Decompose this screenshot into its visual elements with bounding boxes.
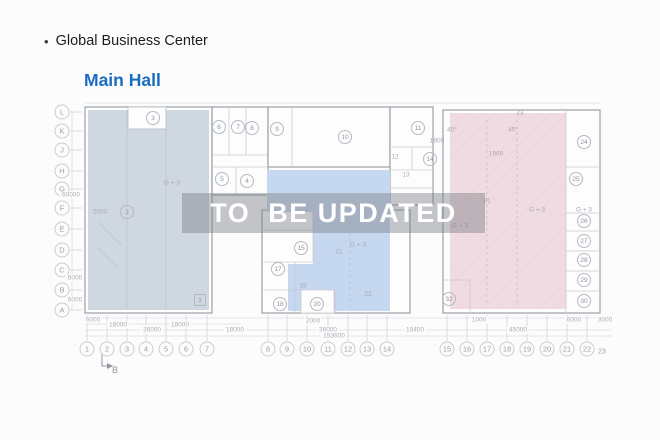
plan-annotation: 45° — [447, 127, 457, 134]
dimension-label: 2000 — [304, 318, 322, 325]
grid-col-4: 4 — [139, 342, 154, 357]
grid-col-tick — [367, 315, 368, 341]
dimension-label: 60000 — [60, 192, 82, 199]
room-5: 5 — [215, 172, 229, 186]
grid-row-H: H — [55, 164, 70, 179]
plan-annotation: 21 — [335, 249, 342, 256]
plan-annotation: 12 — [391, 154, 398, 161]
grid-row-D: D — [55, 243, 70, 258]
grid-col-16: 16 — [460, 342, 475, 357]
grid-row-tick — [70, 150, 82, 151]
room-2: 2 — [120, 205, 134, 219]
grid-col-tick — [268, 315, 269, 341]
room-8: 8 — [245, 121, 259, 135]
dimension-label: 6000 — [66, 297, 84, 304]
plan-annotation: 13 — [402, 172, 409, 179]
grid-row-F: F — [55, 201, 70, 216]
grid-row-L: L — [55, 105, 70, 120]
dimension-label: 18000 — [107, 322, 129, 329]
grid-row-tick — [70, 131, 82, 132]
grid-col-tick — [387, 315, 388, 341]
grid-row-B: B — [55, 283, 70, 298]
room-4: 4 — [240, 174, 254, 188]
grid-col-tick — [348, 315, 349, 341]
grid-row-J: J — [55, 143, 70, 158]
room-17: 17 — [271, 262, 285, 276]
dimension-label: 3000 — [596, 317, 614, 324]
dimension-label: 36000 — [141, 327, 163, 334]
room-27: 27 — [577, 234, 591, 248]
grid-col-20: 20 — [540, 342, 555, 357]
plan-annotation: 19 — [299, 283, 306, 290]
grid-col-10: 10 — [300, 342, 315, 357]
grid-col-13: 13 — [360, 342, 375, 357]
grid-col-6: 6 — [179, 342, 194, 357]
watermark-band: TO BE UPDATED — [182, 193, 485, 233]
room-30: 30 — [577, 294, 591, 308]
room-1: 1 — [194, 294, 206, 306]
grid-row-tick — [70, 290, 82, 291]
dimension-label: 18000 — [224, 327, 246, 334]
dimension-label: 6000 — [565, 317, 583, 324]
section-marker-label: B — [112, 365, 118, 375]
grid-col-15: 15 — [440, 342, 455, 357]
dimension-label: 45000 — [507, 327, 529, 334]
grid-col-3: 3 — [120, 342, 135, 357]
grid-row-A: A — [55, 303, 70, 318]
grid-row-tick — [70, 171, 82, 172]
room-9: 9 — [270, 122, 284, 136]
room-6: 6 — [212, 120, 226, 134]
grid-row-tick — [70, 250, 82, 251]
grid-col-tick — [467, 315, 468, 341]
dimension-label: 18400 — [404, 327, 426, 334]
grid-col-2: 2 — [100, 342, 115, 357]
grid-col-22: 22 — [580, 342, 595, 357]
room-15: 15 — [294, 241, 308, 255]
room-3: 3 — [146, 111, 160, 125]
grid-col-9: 9 — [280, 342, 295, 357]
grid-row-tick — [70, 208, 82, 209]
dimension-label: 18000 — [169, 322, 191, 329]
grid-col-17: 17 — [480, 342, 495, 357]
plan-annotation: 2000 — [93, 209, 107, 216]
room-29: 29 — [577, 273, 591, 287]
grid-col-23: 23 — [598, 349, 606, 356]
room-11: 11 — [411, 121, 425, 135]
room-20: 20 — [310, 297, 324, 311]
room-7: 7 — [231, 120, 245, 134]
grid-col-21: 21 — [560, 342, 575, 357]
grid-col-tick — [166, 315, 167, 341]
grid-col-tick — [447, 315, 448, 341]
grid-col-8: 8 — [261, 342, 276, 357]
grid-row-tick — [70, 310, 82, 311]
room-24: 24 — [577, 135, 591, 149]
grid-col-5: 5 — [159, 342, 174, 357]
grid-col-12: 12 — [341, 342, 356, 357]
dimension-label: 6000 — [84, 317, 102, 324]
watermark-text: TO BE UPDATED — [210, 198, 457, 229]
grid-col-tick — [287, 315, 288, 341]
grid-col-7: 7 — [200, 342, 215, 357]
grid-row-K: K — [55, 124, 70, 139]
plan-annotation: 1900 — [430, 138, 444, 145]
grid-col-tick — [547, 315, 548, 341]
plan-annotation: G + 3 — [164, 180, 180, 187]
grid-col-tick — [587, 315, 588, 341]
room-26: 26 — [577, 214, 591, 228]
plan-annotation: 45° — [508, 127, 518, 134]
grid-row-tick — [70, 112, 82, 113]
room-28: 28 — [577, 253, 591, 267]
slide: • Global Business Center Main Hall — [0, 0, 660, 440]
room-32: 32 — [442, 292, 456, 306]
plan-annotation: G + 3 — [576, 207, 592, 214]
plan-annotation: G + 3 — [350, 242, 366, 249]
grid-row-tick — [70, 270, 82, 271]
grid-row-tick — [70, 229, 82, 230]
room-18: 18 — [273, 297, 287, 311]
grid-col-1: 1 — [80, 342, 95, 357]
dimension-label: 153600 — [321, 333, 347, 340]
dimension-label: 1000 — [470, 317, 488, 324]
grid-row-tick — [70, 189, 82, 190]
plan-annotation: G + 3 — [529, 207, 545, 214]
grid-row-E: E — [55, 222, 70, 237]
grid-col-11: 11 — [321, 342, 336, 357]
grid-col-14: 14 — [380, 342, 395, 357]
room-10: 10 — [338, 130, 352, 144]
plan-annotation: 1900 — [489, 151, 503, 158]
grid-col-18: 18 — [500, 342, 515, 357]
room-14: 14 — [423, 152, 437, 166]
grid-col-19: 19 — [520, 342, 535, 357]
room-25: 25 — [569, 172, 583, 186]
plan-annotation: 23 — [516, 110, 523, 117]
plan-annotation: 22 — [364, 291, 371, 298]
dimension-label: 6000 — [66, 275, 84, 282]
grid-col-tick — [207, 315, 208, 341]
